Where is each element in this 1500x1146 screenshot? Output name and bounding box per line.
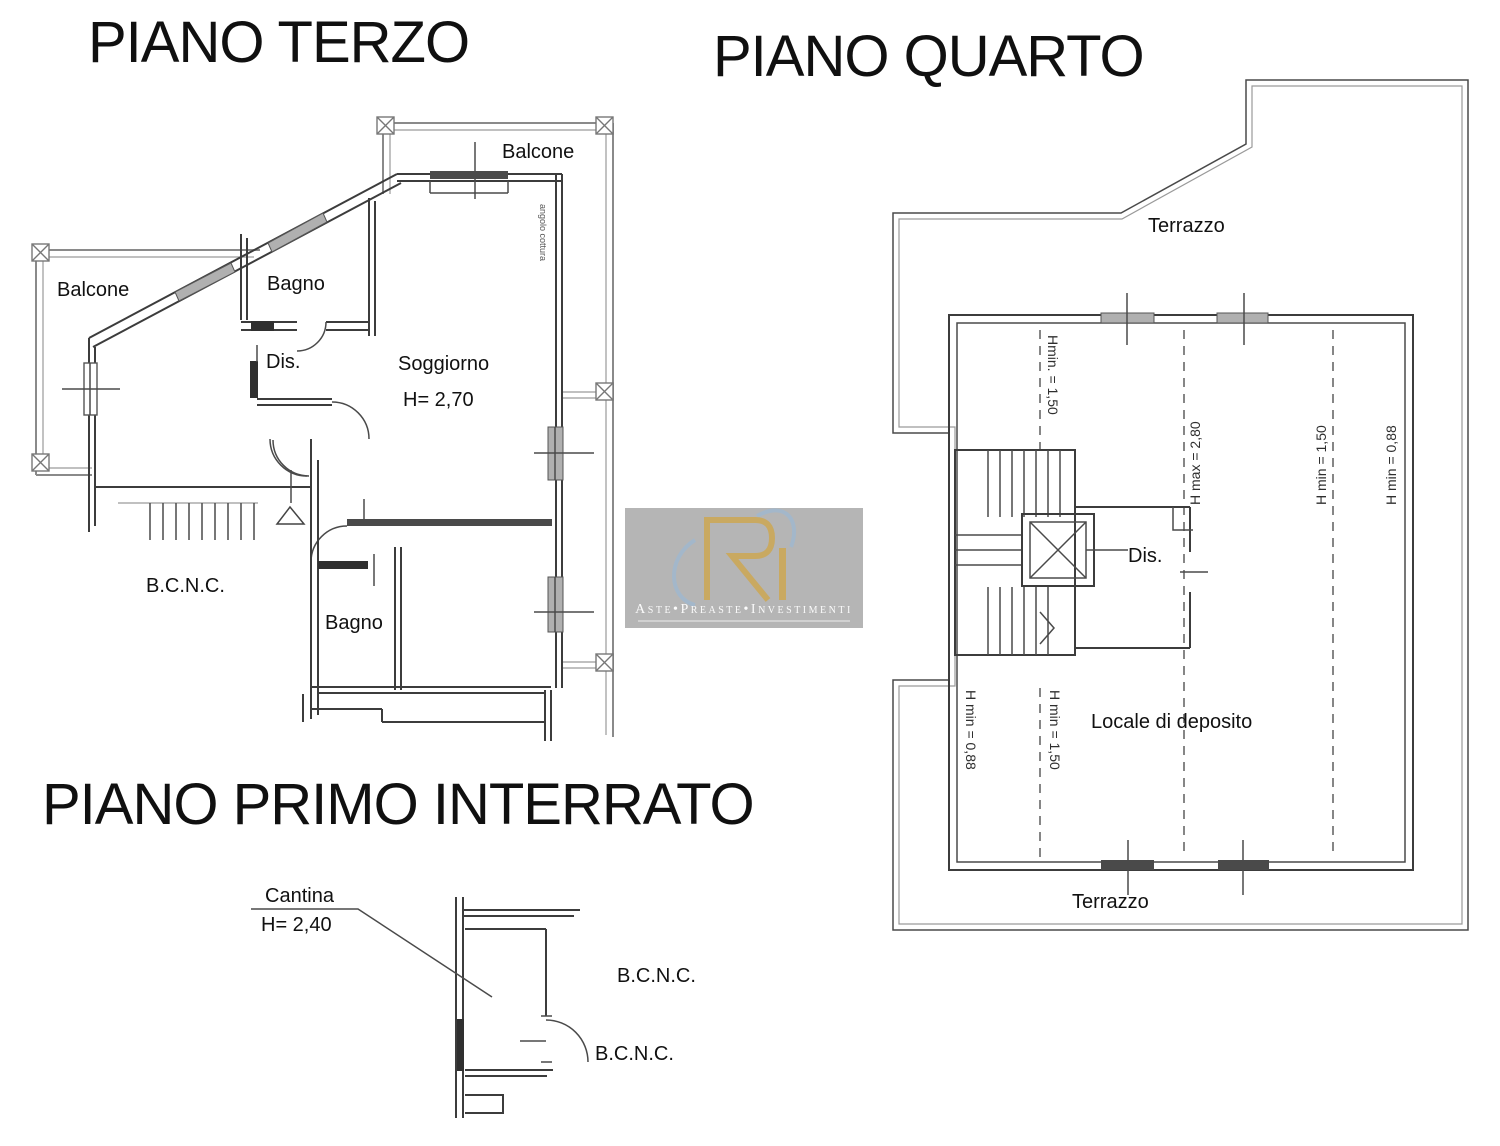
terrace-boundary (893, 80, 1468, 930)
label-bcnc-terzo: B.C.N.C. (146, 575, 225, 597)
label-cantina: Cantina (265, 885, 335, 907)
balcony-railings (36, 123, 613, 737)
label-bagno-lower: Bagno (325, 612, 383, 634)
label-balcone-left: Balcone (57, 279, 129, 301)
label-cantina-height: H= 2,40 (261, 914, 332, 936)
height-dashed-lines (1040, 330, 1333, 858)
label-hmin-lower-center: H min = 1,50 (1047, 690, 1063, 770)
stairwell (955, 450, 1075, 655)
label-balcone-top: Balcone (502, 141, 574, 163)
title-piano-quarto: PIANO QUARTO (713, 24, 1144, 89)
bagno-lower-walls (303, 439, 551, 741)
label-bagno-upper: Bagno (267, 273, 325, 295)
left-window (62, 363, 120, 415)
label-hmin-center: H min = 1,50 (1313, 425, 1329, 505)
watermark-caption: Aste•Preaste•Investimenti (635, 602, 853, 617)
door-arc (297, 322, 326, 351)
attic-bottom-windows (1101, 840, 1269, 895)
label-angolo-cottura: angolo cottura (538, 204, 548, 261)
middle-wall (273, 440, 552, 562)
label-bcnc-1: B.C.N.C. (617, 965, 696, 987)
corner-posts (32, 117, 613, 671)
label-hmax: H max = 2,80 (1187, 421, 1203, 505)
label-terrazzo-bottom: Terrazzo (1072, 891, 1149, 913)
door-arc (273, 440, 309, 476)
watermark: Aste•Preaste•Investimenti (625, 508, 863, 628)
apartment-walls (89, 174, 562, 688)
label-terrazzo-top: Terrazzo (1148, 215, 1225, 237)
stair-landing (95, 439, 312, 540)
label-dis-quarto: Dis. (1128, 545, 1162, 567)
door-arc (311, 526, 347, 562)
stair-arrow (1040, 612, 1054, 644)
door-arc (546, 1020, 588, 1062)
label-locale-deposito: Locale di deposito (1091, 711, 1252, 733)
door-arc (332, 402, 369, 439)
attic-walls (949, 315, 1413, 870)
floorplan-canvas: PIANO TERZO PIANO QUARTO PIANO PRIMO INT… (0, 0, 1500, 1146)
stair-direction-arrow (277, 507, 304, 524)
cantina-walls (456, 897, 588, 1118)
logo-monogram-i (779, 548, 786, 600)
title-piano-primo-interrato: PIANO PRIMO INTERRATO (42, 772, 754, 837)
top-window (430, 142, 508, 199)
label-soggiorno-height: H= 2,70 (403, 389, 474, 411)
label-soggiorno: Soggiorno (398, 353, 489, 375)
label-hmin-right: H min = 0,88 (1383, 425, 1399, 505)
label-bcnc-2: B.C.N.C. (595, 1043, 674, 1065)
label-hmin-upper-left: Hmin. = 1,50 (1045, 335, 1061, 415)
label-hmin-lower-left: H min = 0,88 (963, 690, 979, 770)
right-windows (534, 427, 594, 632)
plan-piano-primo-interrato: Cantina H= 2,40 B.C.N.C. B.C.N.C. (251, 885, 696, 1118)
label-dis: Dis. (266, 351, 300, 373)
plan-piano-quarto: Terrazzo Terrazzo Dis. Locale di deposit… (893, 80, 1468, 930)
floorplan-sheet: PIANO TERZO PIANO QUARTO PIANO PRIMO INT… (0, 0, 1500, 1146)
plan-piano-terzo: Balcone Balcone Bagno Dis. Soggiorno H= … (32, 117, 613, 741)
title-piano-terzo: PIANO TERZO (88, 10, 469, 75)
